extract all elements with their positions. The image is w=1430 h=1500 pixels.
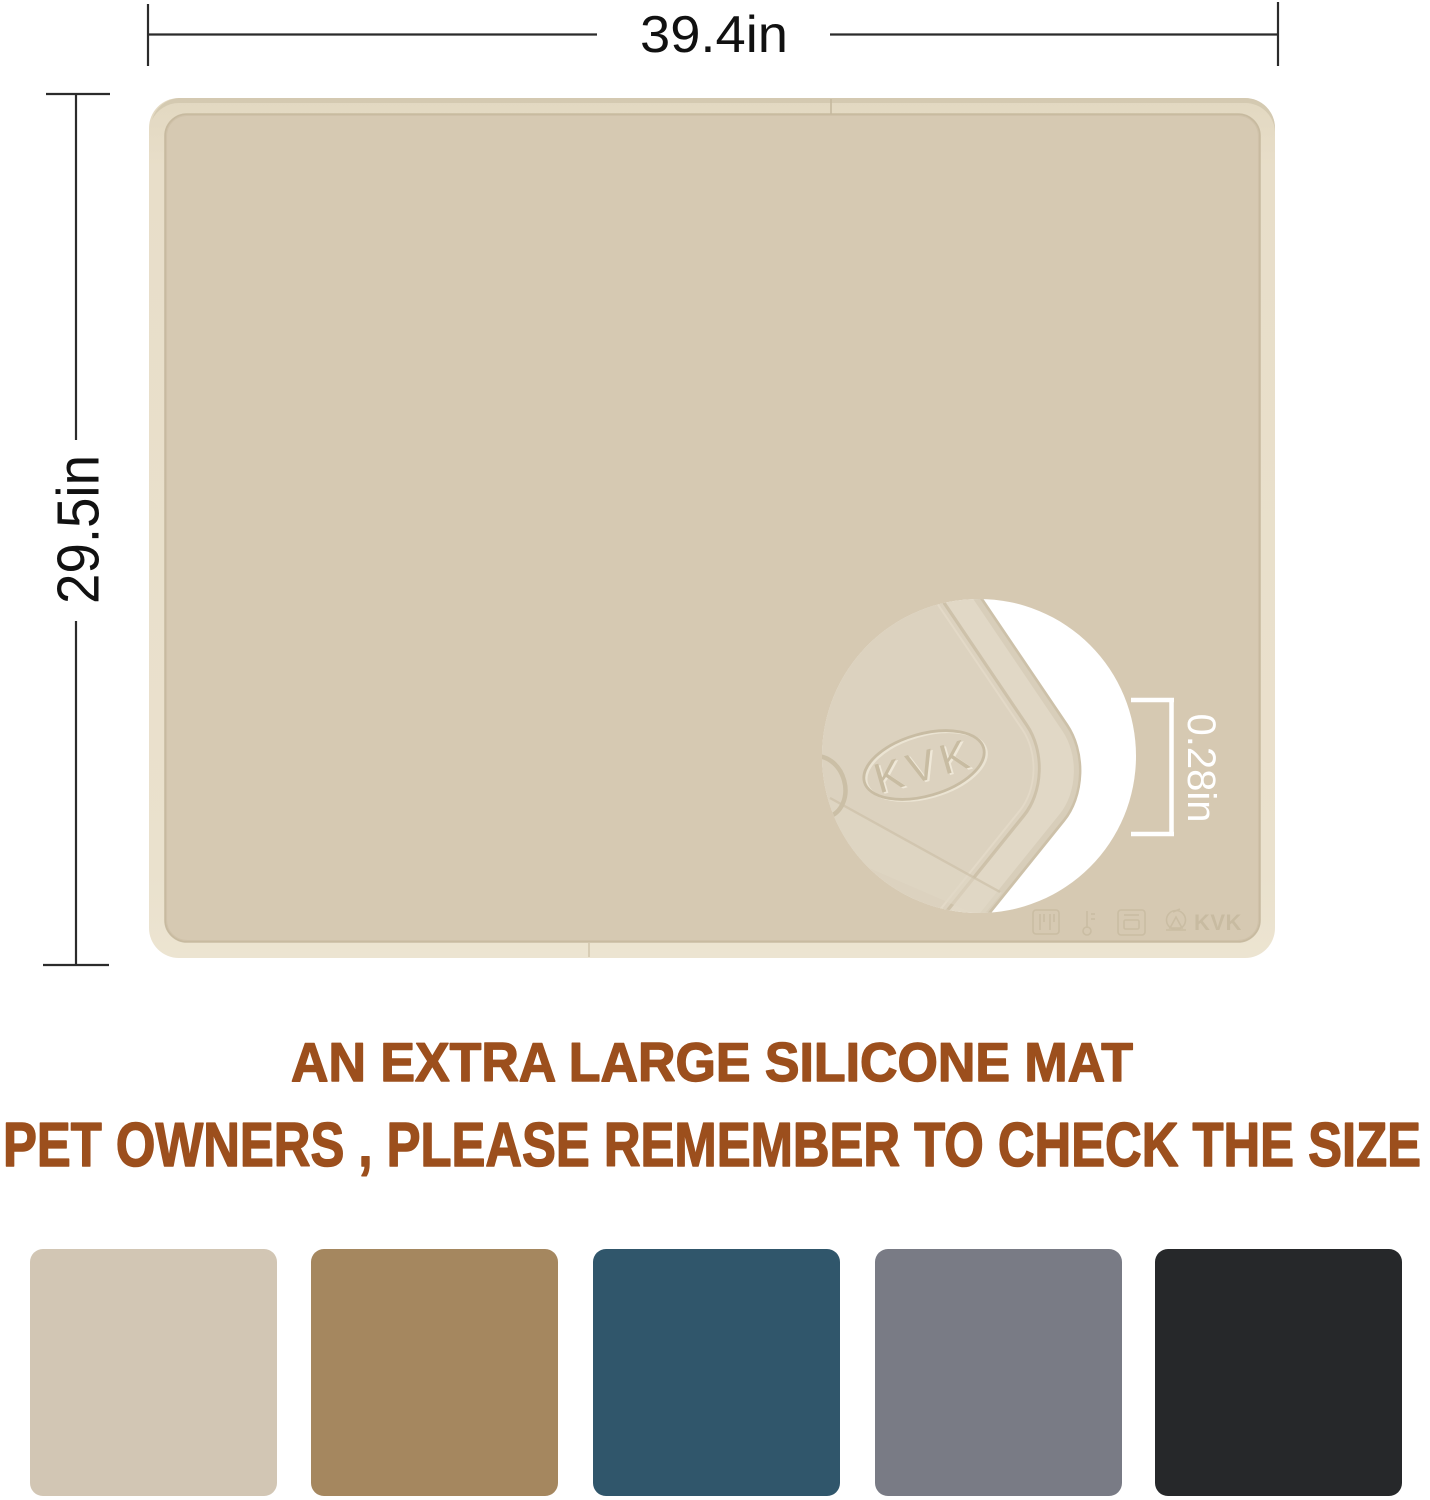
svg-text:0.28in: 0.28in xyxy=(1179,714,1223,823)
svg-text:39.4in: 39.4in xyxy=(640,6,788,64)
svg-text:KVK: KVK xyxy=(1194,910,1242,935)
svg-text:AN EXTRA LARGE SILICONE MAT: AN EXTRA LARGE SILICONE MAT xyxy=(291,1031,1133,1093)
svg-text:29.5in: 29.5in xyxy=(45,455,112,604)
svg-text:PET OWNERS , PLEASE REMEMBER T: PET OWNERS , PLEASE REMEMBER TO CHECK TH… xyxy=(3,1111,1421,1180)
